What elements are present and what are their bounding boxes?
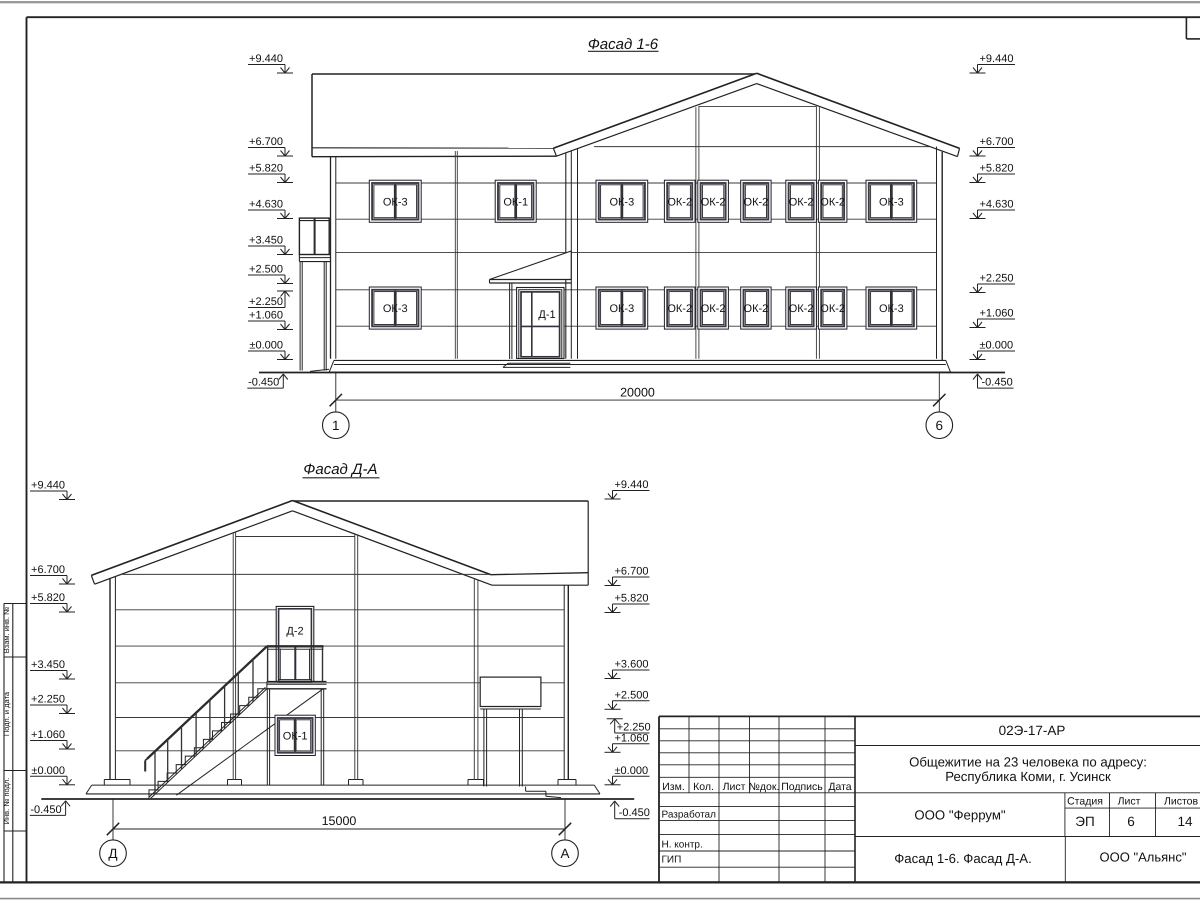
- svg-text:14: 14: [1177, 814, 1193, 829]
- svg-text:ОК-2: ОК-2: [701, 303, 726, 315]
- svg-text:+1.060: +1.060: [980, 308, 1014, 320]
- svg-text:Республика Коми, г. Усинск: Республика Коми, г. Усинск: [945, 769, 1111, 784]
- svg-text:-0.450: -0.450: [619, 807, 650, 819]
- svg-text:+6.700: +6.700: [980, 136, 1014, 148]
- svg-text:ОК-3: ОК-3: [383, 196, 408, 208]
- svg-text:+5.820: +5.820: [31, 592, 65, 604]
- svg-text:ОК-1: ОК-1: [283, 730, 308, 742]
- svg-text:ОК-2: ОК-2: [820, 303, 845, 315]
- svg-text:+3.450: +3.450: [249, 235, 283, 247]
- svg-text:Разработал: Разработал: [662, 809, 717, 820]
- svg-text:20000: 20000: [620, 385, 655, 399]
- svg-text:Инв. № подл.: Инв. № подл.: [2, 778, 11, 825]
- svg-text:+6.700: +6.700: [615, 566, 649, 578]
- svg-text:ОК-3: ОК-3: [609, 196, 634, 208]
- svg-text:+2.500: +2.500: [249, 264, 283, 276]
- svg-text:Лист: Лист: [723, 781, 746, 793]
- svg-text:Кол.: Кол.: [693, 781, 714, 793]
- svg-text:Листов: Листов: [1164, 796, 1199, 808]
- svg-text:Подп. и дата: Подп. и дата: [2, 691, 11, 736]
- svg-text:+5.820: +5.820: [980, 163, 1014, 175]
- svg-text:+9.440: +9.440: [31, 480, 65, 492]
- svg-text:ОК-3: ОК-3: [609, 303, 634, 315]
- svg-text:±0.000: ±0.000: [615, 765, 649, 777]
- svg-text:±0.000: ±0.000: [249, 340, 283, 352]
- svg-text:-0.450: -0.450: [248, 377, 279, 389]
- svg-text:±0.000: ±0.000: [31, 765, 65, 777]
- svg-text:+9.440: +9.440: [615, 479, 649, 491]
- svg-text:+6.700: +6.700: [31, 564, 65, 576]
- svg-text:Фасад 1-6: Фасад 1-6: [588, 36, 659, 53]
- svg-text:ООО "Альянс": ООО "Альянс": [1100, 850, 1187, 865]
- svg-text:Д: Д: [108, 846, 117, 861]
- svg-text:ОК-2: ОК-2: [820, 196, 845, 208]
- svg-text:Лист: Лист: [1118, 796, 1141, 808]
- svg-text:ОК-2: ОК-2: [789, 196, 814, 208]
- svg-text:Подпись: Подпись: [781, 781, 823, 793]
- svg-text:Взам. инв. №: Взам. инв. №: [2, 607, 11, 653]
- svg-text:ОК-2: ОК-2: [744, 196, 769, 208]
- svg-text:-0.450: -0.450: [982, 377, 1013, 389]
- svg-text:Дата: Дата: [828, 781, 851, 793]
- svg-text:+9.440: +9.440: [980, 53, 1014, 65]
- svg-text:-0.450: -0.450: [30, 804, 61, 816]
- svg-text:+1.060: +1.060: [249, 310, 283, 322]
- svg-text:+6.700: +6.700: [249, 136, 283, 148]
- svg-text:+5.820: +5.820: [249, 163, 283, 175]
- svg-text:15000: 15000: [322, 814, 357, 828]
- svg-text:ЭП: ЭП: [1075, 814, 1094, 829]
- svg-text:+3.450: +3.450: [31, 659, 65, 671]
- svg-text:+2.500: +2.500: [615, 689, 649, 701]
- svg-text:ОК-2: ОК-2: [744, 303, 769, 315]
- svg-text:+2.250: +2.250: [249, 296, 283, 308]
- svg-text:ГИП: ГИП: [662, 855, 682, 866]
- svg-text:№док.: №док.: [749, 781, 780, 793]
- svg-text:Н. контр.: Н. контр.: [662, 839, 703, 850]
- svg-text:+2.250: +2.250: [31, 694, 65, 706]
- svg-text:02Э-17-АР: 02Э-17-АР: [999, 723, 1066, 738]
- svg-text:6: 6: [1127, 814, 1135, 829]
- svg-text:ОК-3: ОК-3: [879, 196, 904, 208]
- svg-text:ОК-1: ОК-1: [503, 196, 528, 208]
- svg-text:ОК-3: ОК-3: [383, 303, 408, 315]
- svg-text:+5.820: +5.820: [615, 593, 649, 605]
- svg-text:+4.630: +4.630: [249, 199, 283, 211]
- svg-text:+9.440: +9.440: [249, 53, 283, 65]
- svg-text:Стадия: Стадия: [1067, 796, 1103, 808]
- svg-text:+2.250: +2.250: [980, 273, 1014, 285]
- svg-text:ОК-2: ОК-2: [667, 303, 692, 315]
- svg-text:+4.630: +4.630: [980, 199, 1014, 211]
- svg-text:Общежитие на 23 человека по ад: Общежитие на 23 человека по адресу:: [909, 755, 1147, 770]
- svg-text:Изм.: Изм.: [662, 781, 685, 793]
- svg-text:+3.600: +3.600: [615, 659, 649, 671]
- svg-text:1: 1: [332, 418, 340, 433]
- svg-text:+1.060: +1.060: [31, 729, 65, 741]
- svg-text:ООО "Феррум": ООО "Феррум": [914, 808, 1006, 823]
- svg-text:Д-2: Д-2: [286, 626, 303, 638]
- svg-text:Фасад 1-6. Фасад Д-А.: Фасад 1-6. Фасад Д-А.: [894, 851, 1031, 866]
- svg-text:А: А: [560, 846, 569, 861]
- svg-text:Д-1: Д-1: [538, 309, 555, 321]
- svg-text:ОК-2: ОК-2: [789, 303, 814, 315]
- svg-text:ОК-3: ОК-3: [879, 303, 904, 315]
- svg-text:Фасад Д-А: Фасад Д-А: [303, 461, 377, 478]
- svg-text:ОК-2: ОК-2: [701, 196, 726, 208]
- svg-text:6: 6: [936, 418, 944, 433]
- svg-text:+1.060: +1.060: [615, 732, 649, 744]
- svg-text:±0.000: ±0.000: [980, 340, 1014, 352]
- svg-text:ОК-2: ОК-2: [667, 196, 692, 208]
